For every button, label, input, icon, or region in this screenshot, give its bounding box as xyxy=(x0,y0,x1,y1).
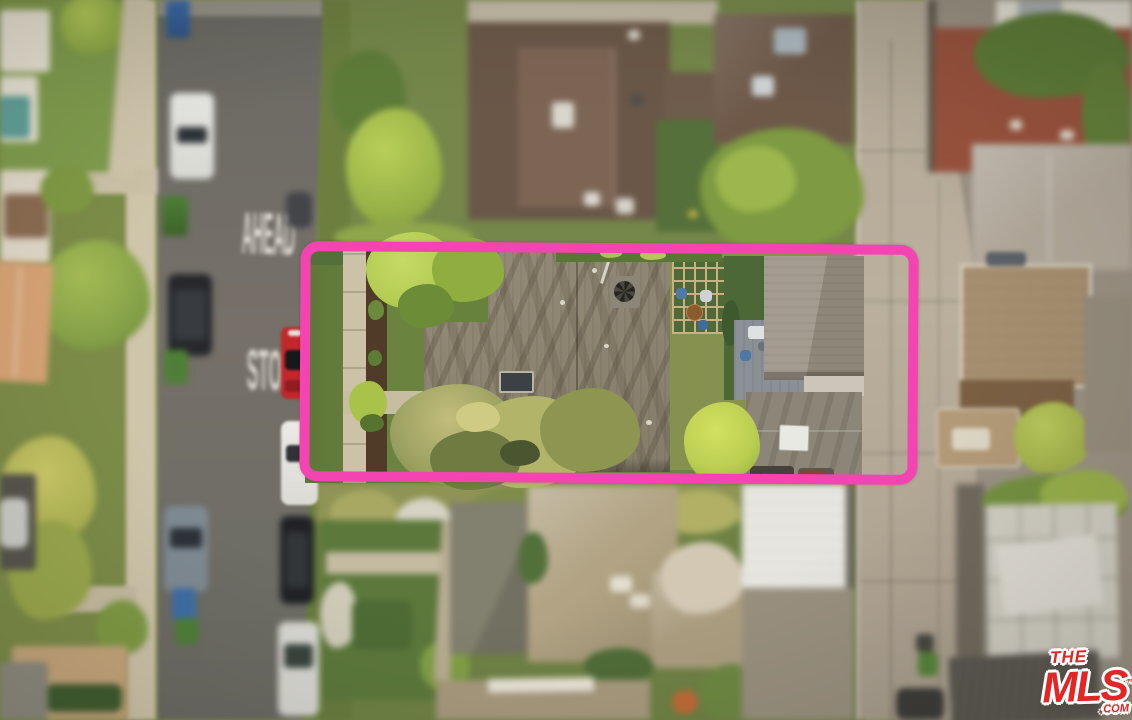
mls-watermark-logo: THE MLS™ .COM xyxy=(1041,647,1129,720)
aerial-photo-scene: AHEAD STOP xyxy=(0,0,1132,720)
trademark-symbol: ™ xyxy=(1127,677,1132,687)
property-boundary-highlight xyxy=(299,241,918,485)
